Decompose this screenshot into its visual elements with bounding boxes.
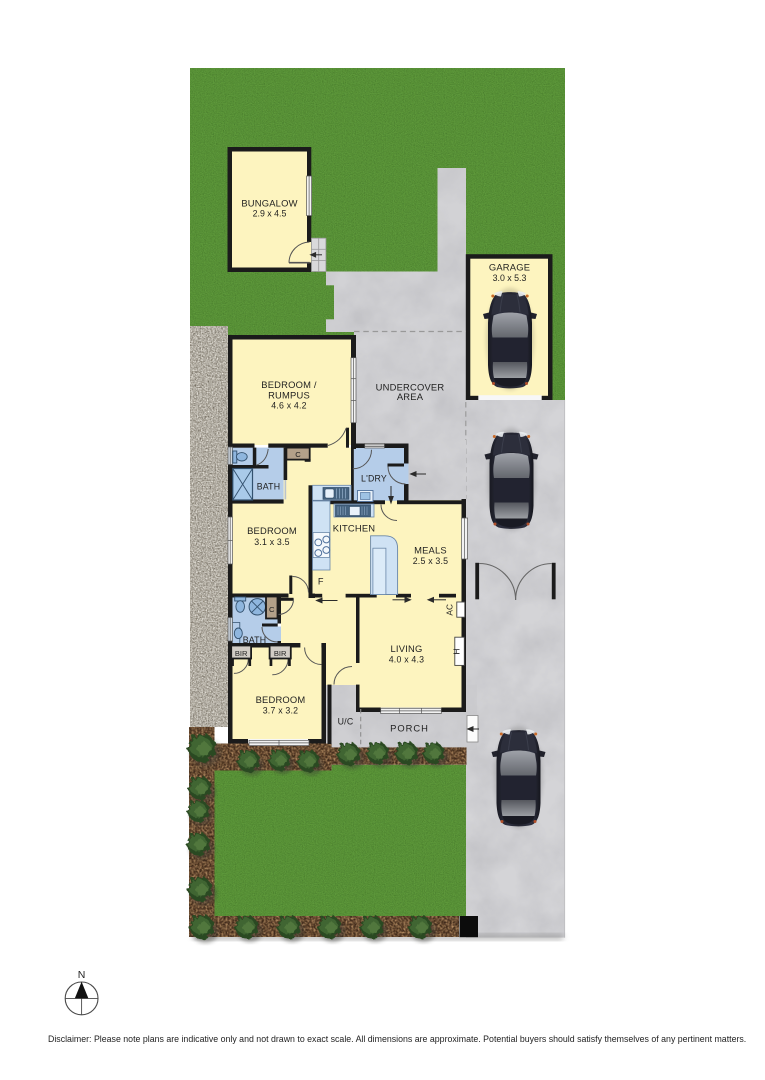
svg-text:BATH: BATH xyxy=(257,482,281,492)
svg-text:MEALS: MEALS xyxy=(414,545,447,556)
svg-text:F: F xyxy=(318,577,324,587)
svg-text:L'DRY: L'DRY xyxy=(361,474,387,484)
svg-text:Disclaimer: Please note plans: Disclaimer: Please note plans are indica… xyxy=(48,1034,746,1044)
svg-text:4.6 x 4.2: 4.6 x 4.2 xyxy=(271,401,307,411)
svg-text:AREA: AREA xyxy=(397,391,424,402)
svg-text:N: N xyxy=(78,969,86,981)
svg-text:BEDROOM: BEDROOM xyxy=(256,694,306,705)
svg-text:3.7 x 3.2: 3.7 x 3.2 xyxy=(263,706,299,716)
svg-text:GARAGE: GARAGE xyxy=(489,262,530,273)
svg-text:2.5 x 3.5: 2.5 x 3.5 xyxy=(413,556,449,566)
svg-text:AC: AC xyxy=(445,604,455,616)
svg-text:BIR: BIR xyxy=(235,649,248,658)
svg-text:4.0 x 4.3: 4.0 x 4.3 xyxy=(389,655,425,665)
svg-text:3.1 x 3.5: 3.1 x 3.5 xyxy=(254,537,290,547)
svg-text:C: C xyxy=(269,605,275,614)
svg-text:PORCH: PORCH xyxy=(390,723,429,734)
svg-text:RUMPUS: RUMPUS xyxy=(268,390,310,401)
svg-text:BEDROOM /: BEDROOM / xyxy=(261,379,317,390)
svg-text:C: C xyxy=(295,450,301,459)
svg-text:BIR: BIR xyxy=(274,649,287,658)
svg-text:BUNGALOW: BUNGALOW xyxy=(241,198,297,209)
svg-text:H: H xyxy=(452,649,462,655)
svg-text:BEDROOM: BEDROOM xyxy=(247,525,297,536)
svg-text:2.9 x 4.5: 2.9 x 4.5 xyxy=(253,209,287,219)
svg-text:3.0 x 5.3: 3.0 x 5.3 xyxy=(493,273,527,283)
svg-text:U/C: U/C xyxy=(338,717,354,727)
svg-text:BATH: BATH xyxy=(243,635,267,645)
svg-text:LIVING: LIVING xyxy=(391,643,423,654)
svg-text:KITCHEN: KITCHEN xyxy=(333,523,376,534)
